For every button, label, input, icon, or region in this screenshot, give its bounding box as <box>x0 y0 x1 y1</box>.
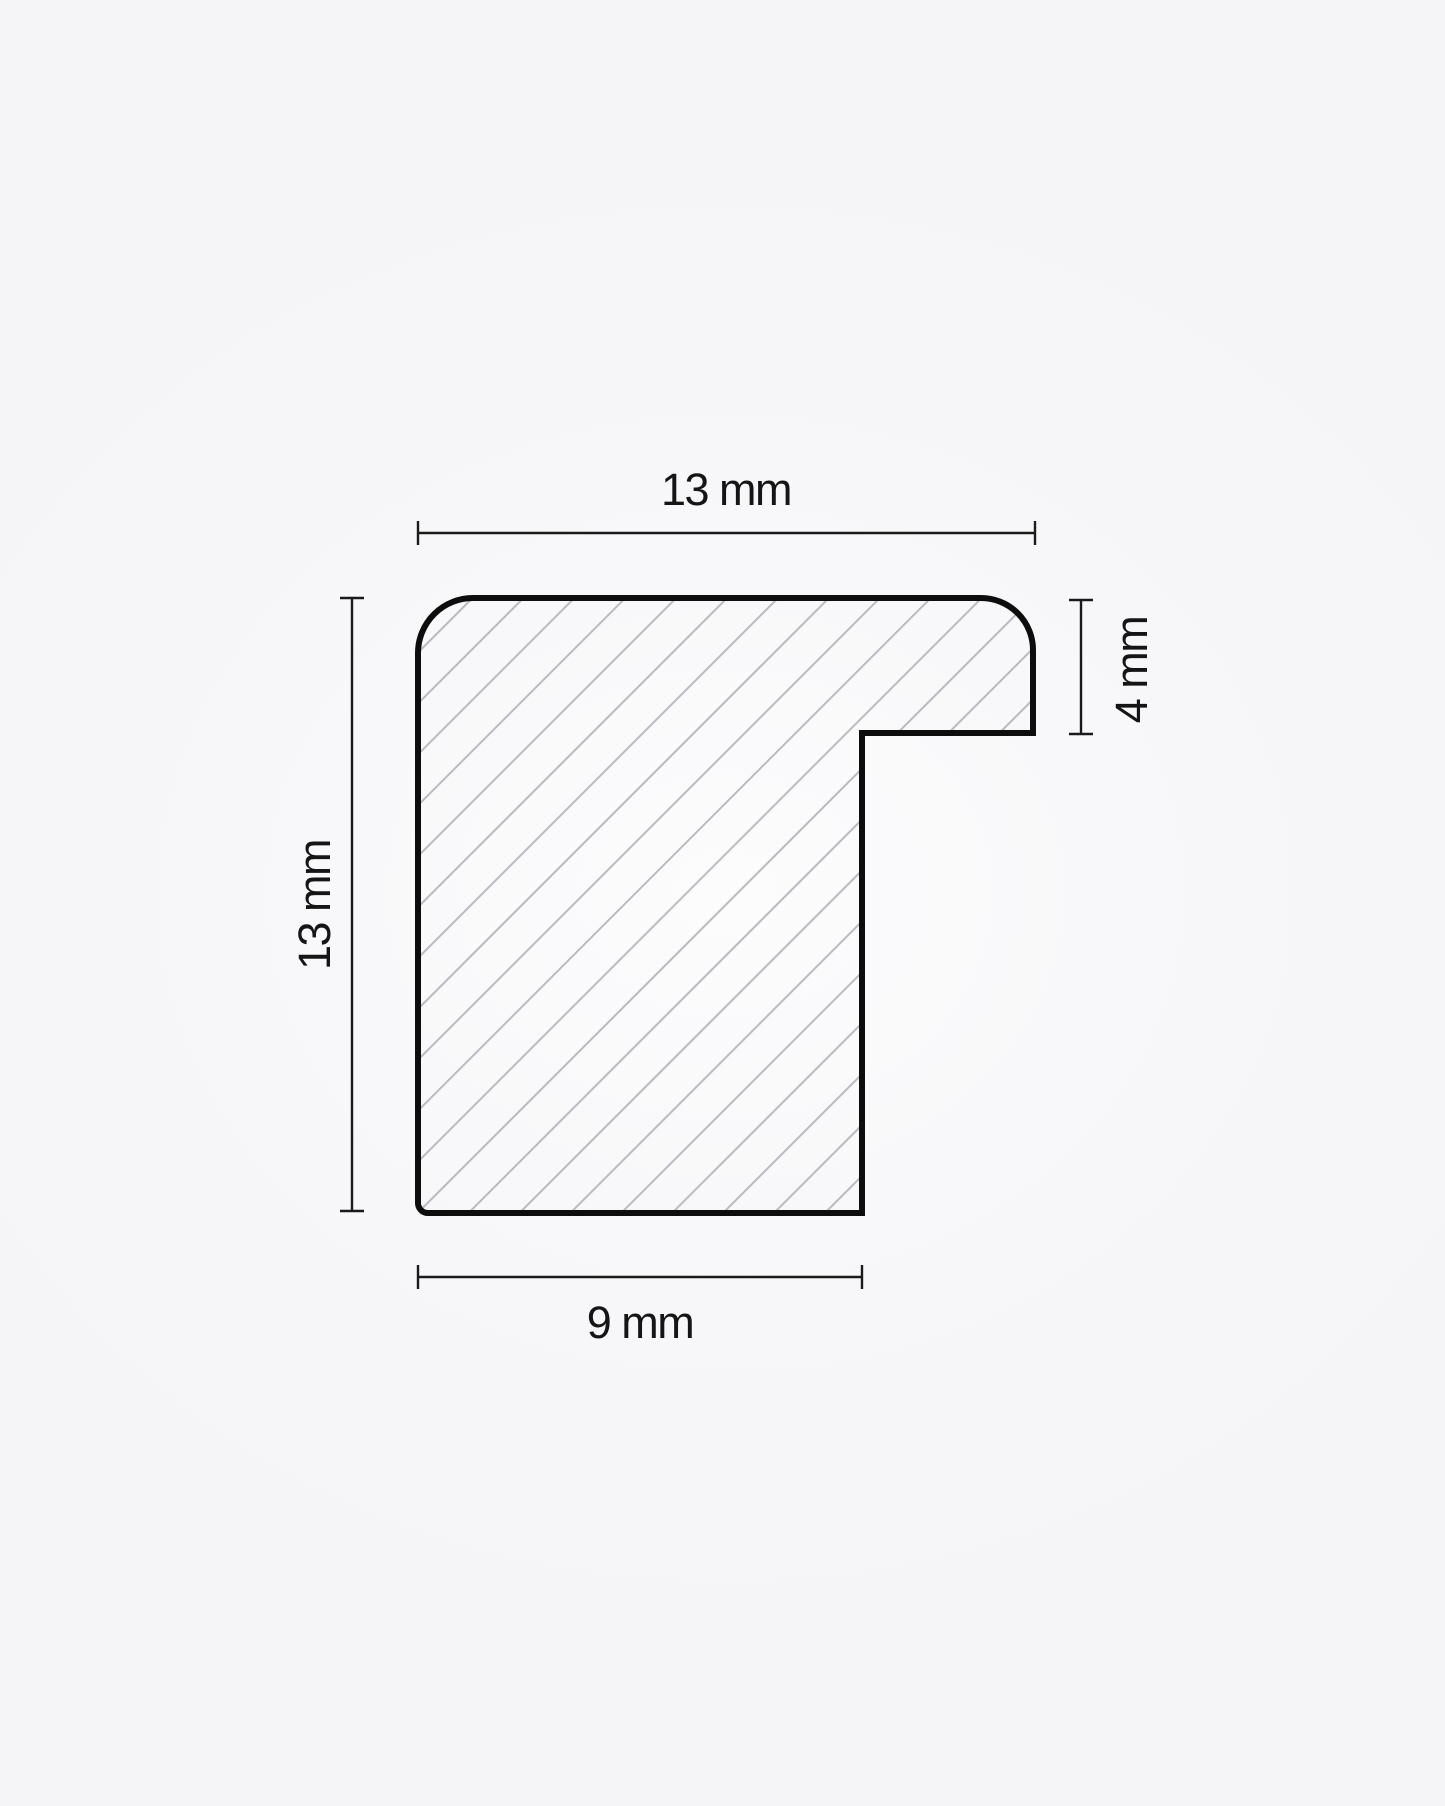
dimension-label-right: 4 mm <box>1106 617 1157 724</box>
dimension-label-bottom: 9 mm <box>587 1297 694 1348</box>
dimension-label-top: 13 mm <box>661 464 791 515</box>
profile-outline <box>418 598 1033 1213</box>
profile-cross-section-drawing: 13 mm 13 mm 4 mm 9 mm <box>0 0 1445 1806</box>
dimension-label-left: 13 mm <box>289 840 340 970</box>
diagram-canvas: 13 mm 13 mm 4 mm 9 mm <box>0 0 1445 1806</box>
